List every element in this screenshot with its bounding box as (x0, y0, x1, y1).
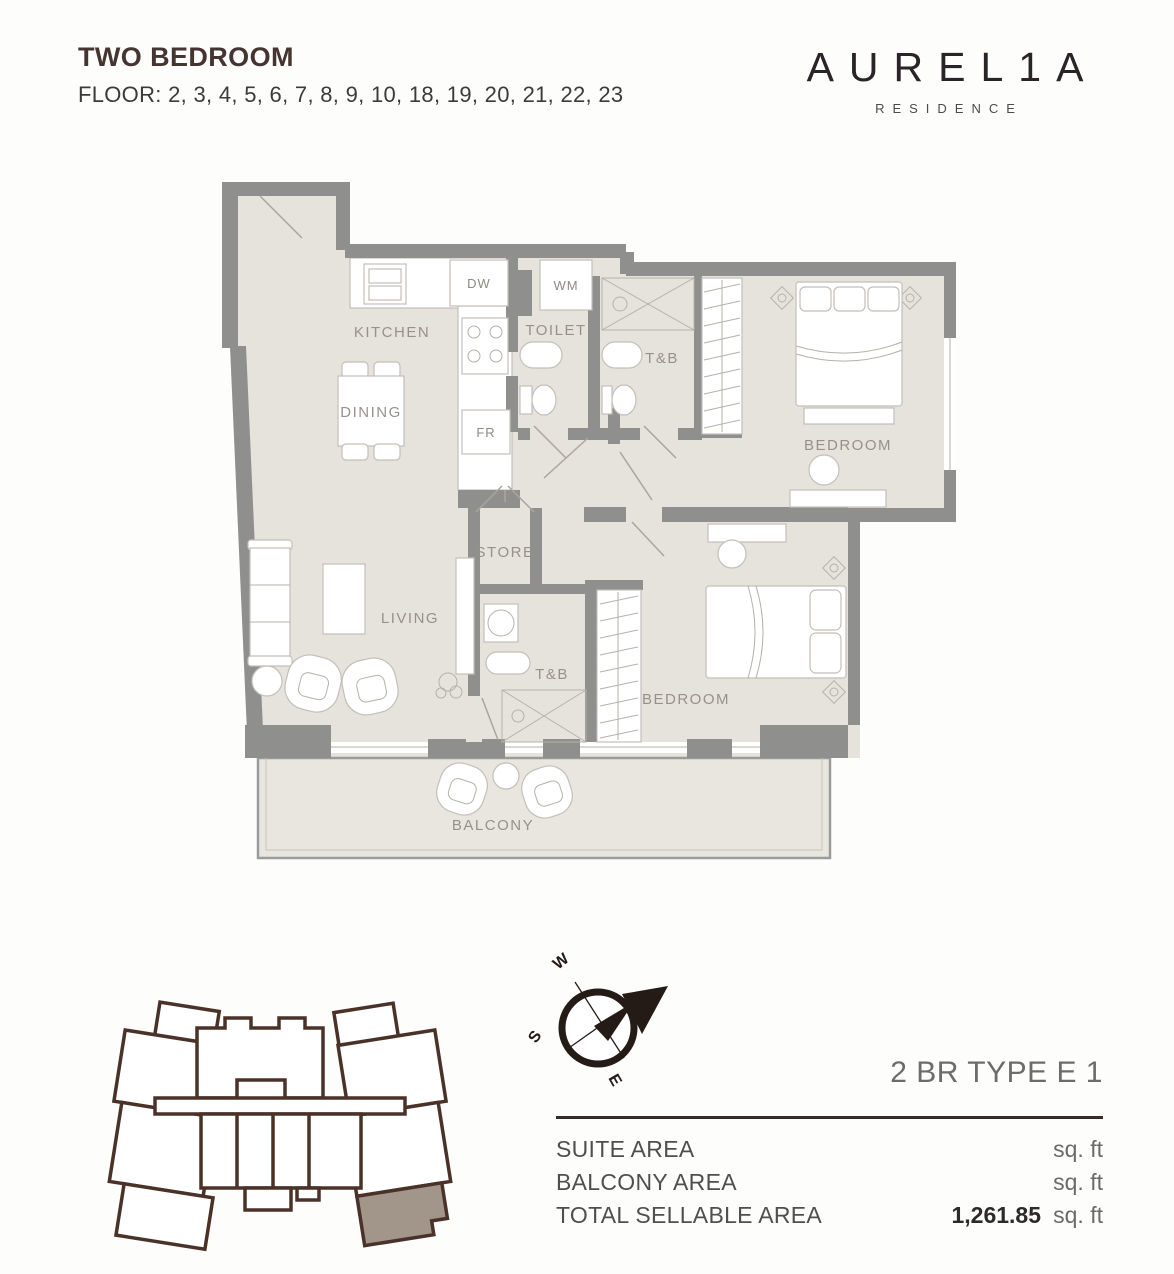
unit-info-panel: 2 BR TYPE E 1 SUITE AREA sq. ft BALCONY … (556, 1056, 1103, 1232)
page-title: TWO BEDROOM (78, 42, 623, 73)
header: TWO BEDROOM FLOOR: 2, 3, 4, 5, 6, 7, 8, … (78, 42, 623, 108)
compass-s: S (528, 1028, 546, 1047)
label-tb-master: T&B (645, 350, 679, 367)
area-value: 1,261.85 (951, 1199, 1041, 1232)
label-fridge: FR (476, 425, 495, 440)
label-bedroom-master: BEDROOM (804, 437, 892, 454)
area-row-total: TOTAL SELLABLE AREA 1,261.85 sq. ft (556, 1199, 1103, 1232)
floor-list: FLOOR: 2, 3, 4, 5, 6, 7, 8, 9, 10, 18, 1… (78, 82, 623, 108)
label-store: STORE (476, 544, 535, 561)
info-divider (556, 1116, 1103, 1119)
brand-name: AUREL1A (780, 44, 1125, 91)
brand-tagline: RESIDENCE (780, 101, 1118, 116)
compass-w: W (550, 950, 573, 973)
area-row-suite: SUITE AREA sq. ft (556, 1133, 1103, 1166)
key-plan (85, 998, 475, 1253)
unit-type-label: 2 BR TYPE E 1 (556, 1056, 1103, 1090)
label-tb-second: T&B (535, 666, 569, 683)
label-dishwasher: DW (467, 276, 491, 291)
label-balcony: BALCONY (452, 817, 534, 834)
area-unit: sq. ft (1041, 1166, 1103, 1199)
label-bedroom-second: BEDROOM (642, 691, 730, 708)
label-dining: DINING (340, 404, 402, 421)
area-label: SUITE AREA (556, 1133, 1041, 1166)
area-unit: sq. ft (1041, 1199, 1103, 1232)
area-label: BALCONY AREA (556, 1166, 1041, 1199)
floorplan-page: TWO BEDROOM FLOOR: 2, 3, 4, 5, 6, 7, 8, … (0, 0, 1174, 1274)
area-label: TOTAL SELLABLE AREA (556, 1199, 951, 1232)
label-living: LIVING (381, 610, 439, 627)
brand-logo: AUREL1A RESIDENCE (780, 44, 1110, 116)
label-washing-machine: WM (553, 278, 578, 293)
area-unit: sq. ft (1041, 1133, 1103, 1166)
label-kitchen: KITCHEN (354, 324, 430, 341)
floor-plan-drawing: KITCHEN DINING TOILET T&B BEDROOM STORE … (200, 160, 980, 870)
area-row-balcony: BALCONY AREA sq. ft (556, 1166, 1103, 1199)
label-toilet: TOILET (525, 322, 586, 339)
